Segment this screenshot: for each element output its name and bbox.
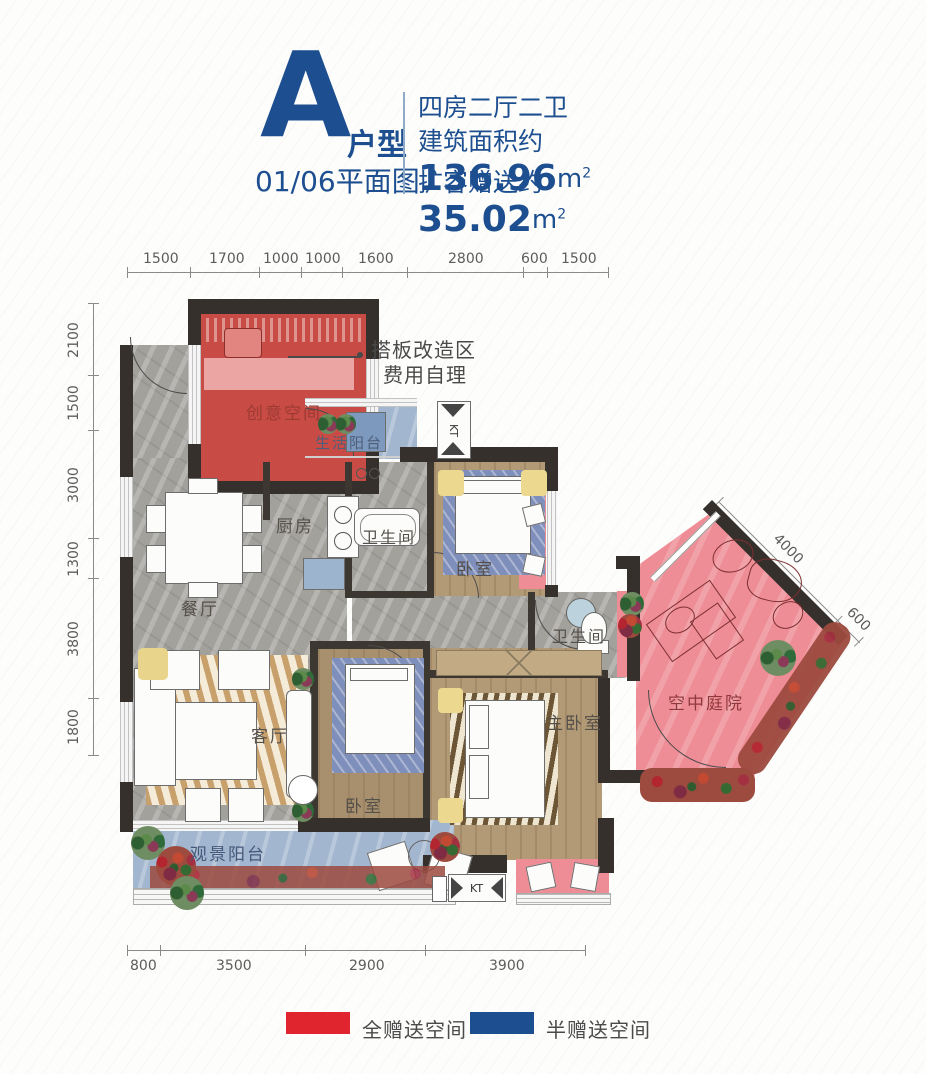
living-lamp <box>138 648 168 680</box>
room-label-kitchen: 厨房 <box>276 512 314 537</box>
bonus-sup: 2 <box>557 207 566 223</box>
annotation-line2: 费用自理 <box>383 359 467 388</box>
room-label-living: 客厅 <box>251 722 289 747</box>
ac-label: KT <box>447 424 460 437</box>
plant-icon <box>336 414 356 434</box>
master-balcony-railing <box>516 893 611 905</box>
room-label-creative: 创意空间 <box>246 399 322 424</box>
bonus-value: 35.02 <box>418 199 532 240</box>
room-label-bedroom-tr: 卧室 <box>456 555 494 580</box>
plan-subtitle: 01/06平面图 <box>255 160 420 200</box>
bonus-prefix: 扩容赠送约 <box>418 168 543 197</box>
room-label-bath2: 卫生间 <box>552 623 606 647</box>
legend-swatch-half <box>470 1012 534 1034</box>
ac-unit-bottom: KT <box>448 874 506 902</box>
room-label-courtyard: 空中庭院 <box>668 689 744 714</box>
room-label-bath1: 卫生间 <box>362 524 416 548</box>
header-divider <box>403 92 405 194</box>
legend-label-half: 半赠送空间 <box>546 1014 651 1043</box>
page-title: A 户型 01/06平面图 四房二厅二卫 建筑面积约136.96m2 扩容赠送约… <box>255 60 675 210</box>
bonus-unit: m <box>532 205 557 235</box>
dining-table <box>165 492 243 584</box>
room-label-bedroom-ll: 卧室 <box>345 792 383 817</box>
unit-suffix: 户型 <box>347 120 407 164</box>
kitchen-sink <box>303 558 345 590</box>
area-prefix: 建筑面积约 <box>418 127 543 156</box>
unit-letter: A <box>260 36 351 154</box>
creative-desk <box>204 358 354 390</box>
floorplan-page: A 户型 01/06平面图 四房二厅二卫 建筑面积约136.96m2 扩容赠送约… <box>0 0 926 1074</box>
plant-icon <box>292 668 314 690</box>
living-coffee-table <box>175 702 257 780</box>
bonus-line: 扩容赠送约35.02m2 <box>418 163 675 240</box>
room-label-service-balcony: 生活阳台 <box>315 432 383 453</box>
ac-unit-top: KT <box>437 401 471 459</box>
spec-text: 四房二厅二卫 <box>418 93 568 122</box>
legend-swatch-full <box>286 1012 350 1034</box>
creative-chair <box>224 328 262 358</box>
room-label-dining: 餐厅 <box>181 595 219 620</box>
master-closet <box>436 650 602 676</box>
spec-line: 四房二厅二卫 <box>418 88 568 124</box>
bedroom-tr-nightstand <box>438 470 464 496</box>
legend-label-full: 全赠送空间 <box>362 1014 467 1043</box>
room-label-view-balcony: 观景阳台 <box>190 840 266 865</box>
room-label-master: 主卧室 <box>546 709 603 734</box>
ac-label: KT <box>470 882 483 895</box>
